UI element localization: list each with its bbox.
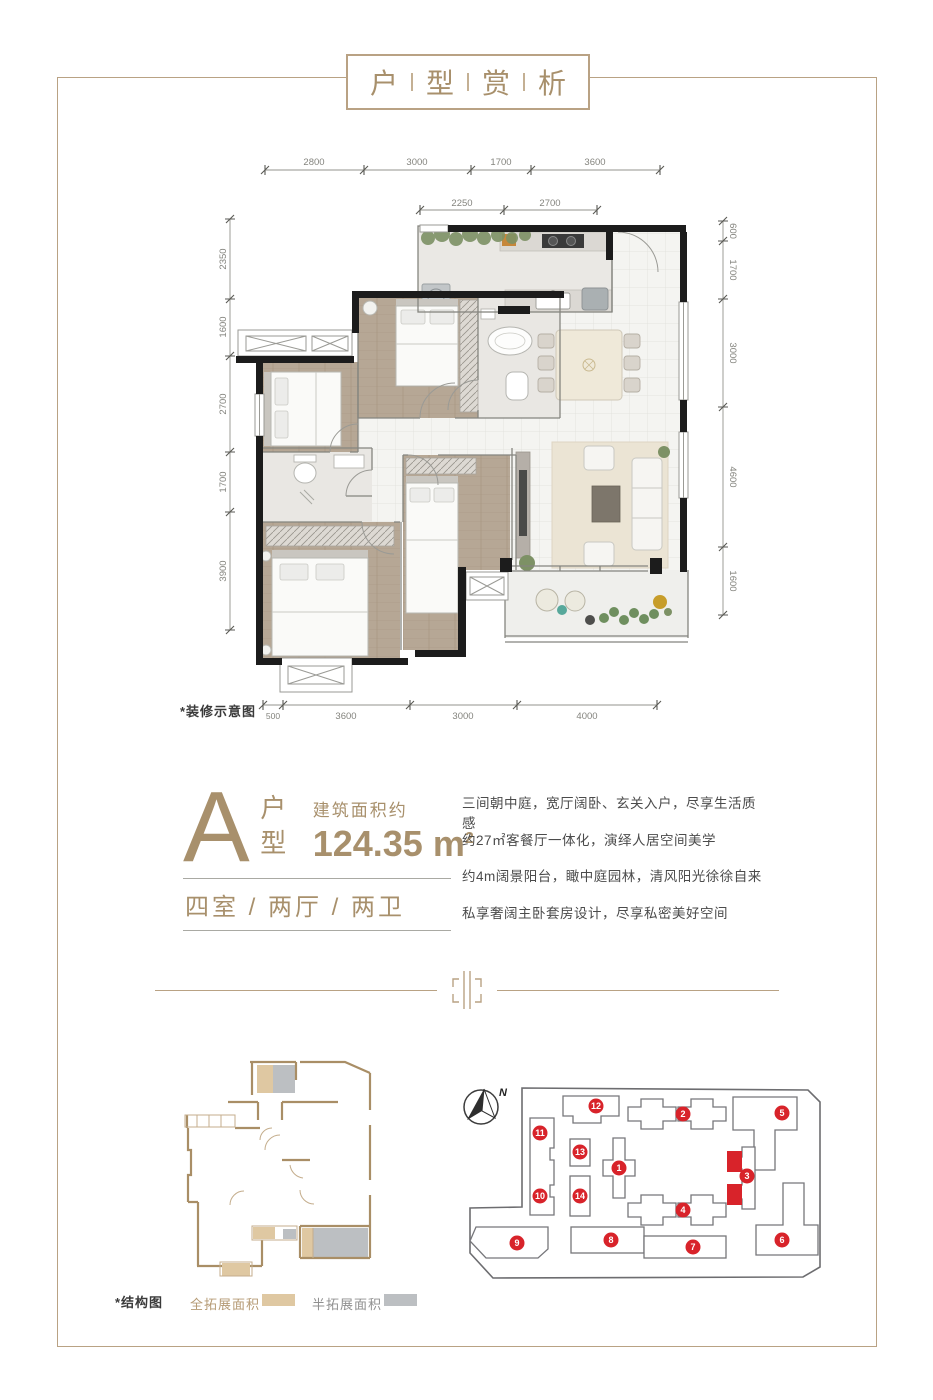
- unit-info: A 户型 建筑面积约 124.35 m2 四室 / 两厅 / 两卫: [183, 786, 451, 931]
- svg-text:14: 14: [575, 1191, 585, 1201]
- svg-text:3: 3: [744, 1171, 749, 1181]
- title-char: 析: [538, 62, 566, 102]
- svg-text:2: 2: [680, 1109, 685, 1119]
- unit-letter: A: [183, 786, 248, 868]
- floorplan-note: *装修示意图: [180, 701, 256, 720]
- title-separator: [523, 73, 525, 91]
- structure-note: *结构图: [115, 1292, 163, 1311]
- svg-text:500: 500: [266, 711, 280, 721]
- svg-text:2350: 2350: [218, 248, 229, 269]
- svg-text:3600: 3600: [335, 711, 356, 722]
- divider-line-left: [155, 990, 437, 991]
- area-value: 124.35 m2: [313, 823, 474, 865]
- legend-label-half-expansion: 半拓展面积: [312, 1294, 382, 1313]
- divider-line-right: [497, 990, 779, 991]
- svg-text:6: 6: [779, 1235, 784, 1245]
- svg-text:3900: 3900: [218, 560, 229, 581]
- svg-text:1600: 1600: [727, 570, 738, 591]
- svg-text:600: 600: [727, 223, 738, 239]
- title-separator: [411, 73, 413, 91]
- page-title: 户 型 赏 析: [346, 54, 590, 110]
- svg-text:9: 9: [514, 1238, 519, 1248]
- structure-details: [185, 1115, 314, 1276]
- compass-north-label: N: [499, 1087, 508, 1099]
- svg-text:2250: 2250: [451, 198, 472, 209]
- svg-text:1700: 1700: [727, 259, 738, 280]
- title-char: 赏: [482, 62, 510, 102]
- description-line: 私享奢阔主卧套房设计，尽享私密美好空间: [462, 902, 767, 939]
- svg-text:3000: 3000: [406, 157, 427, 168]
- description-line: 约27㎡客餐厅一体化，演绎人居空间美学: [462, 829, 767, 866]
- svg-text:11: 11: [535, 1128, 545, 1138]
- unit-type-label: 户型: [254, 794, 291, 864]
- structure-diagram: [115, 1035, 415, 1290]
- svg-text:13: 13: [575, 1147, 585, 1157]
- svg-text:8: 8: [608, 1235, 613, 1245]
- svg-text:2800: 2800: [303, 157, 324, 168]
- svg-text:4: 4: [680, 1205, 685, 1215]
- svg-text:4600: 4600: [727, 466, 738, 487]
- svg-text:12: 12: [591, 1101, 601, 1111]
- svg-text:3000: 3000: [727, 342, 738, 363]
- floorplan-drawing: 2800 3000 1700 3600 2250 2700 2350 1600 …: [185, 155, 765, 745]
- svg-text:3000: 3000: [452, 711, 473, 722]
- svg-text:1600: 1600: [218, 316, 229, 337]
- svg-text:3600: 3600: [584, 157, 605, 168]
- unit-layout: 四室 / 两厅 / 两卫: [183, 879, 451, 930]
- svg-text:2700: 2700: [218, 393, 229, 414]
- svg-text:1: 1: [616, 1163, 621, 1173]
- unit-description: 三间朝中庭，宽厅阔卧、玄关入户，尽享生活质感 约27㎡客餐厅一体化，演绎人居空间…: [462, 792, 767, 938]
- rule: [183, 930, 451, 931]
- svg-text:10: 10: [535, 1191, 545, 1201]
- svg-text:1700: 1700: [490, 157, 511, 168]
- site-plan: N 1 2 3 4 5 6 7 8 9 10 11 12 13 14: [450, 1070, 840, 1305]
- highlighted-units: [727, 1151, 742, 1205]
- svg-text:2700: 2700: [539, 198, 560, 209]
- svg-text:5: 5: [779, 1108, 784, 1118]
- compass-icon: N: [464, 1087, 508, 1124]
- legend-swatch-full-expansion: [262, 1294, 295, 1306]
- description-line: 约4m阔景阳台，瞰中庭园林，清风阳光徐徐自来: [462, 865, 767, 902]
- description-line: 三间朝中庭，宽厅阔卧、玄关入户，尽享生活质感: [462, 792, 767, 829]
- divider-ornament-icon: [437, 967, 497, 1013]
- svg-text:1700: 1700: [218, 471, 229, 492]
- svg-text:4000: 4000: [576, 711, 597, 722]
- expansion-fills: [222, 1065, 368, 1276]
- title-char: 型: [426, 62, 454, 102]
- poster-page: 户 型 赏 析: [0, 0, 933, 1400]
- svg-text:7: 7: [690, 1242, 695, 1252]
- legend-swatch-half-expansion: [384, 1294, 417, 1306]
- area-prefix: 建筑面积约: [313, 796, 474, 821]
- legend-label-full-expansion: 全拓展面积: [190, 1294, 260, 1313]
- title-separator: [467, 73, 469, 91]
- title-char: 户: [370, 62, 398, 102]
